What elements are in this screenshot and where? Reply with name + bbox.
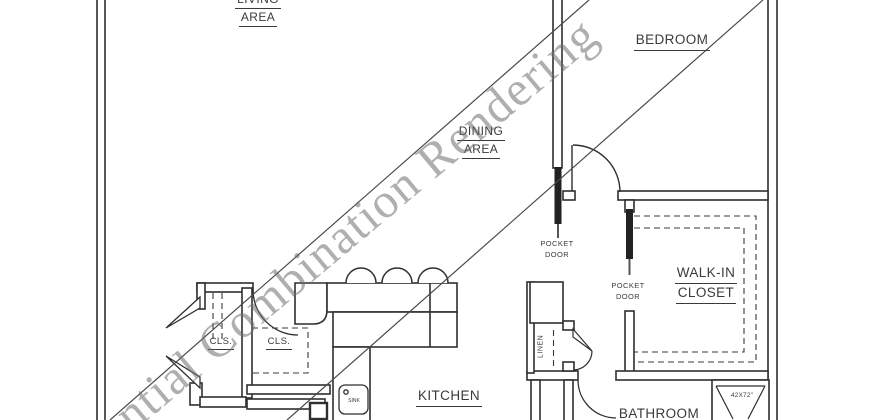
linen-label: LINEN (538, 331, 547, 361)
linen-door (573, 329, 592, 370)
dining-area-label: DINING AREA (453, 124, 509, 160)
pocket-door-1-panel (555, 167, 562, 238)
pocket-door-1-label: POCKET DOOR (536, 239, 578, 261)
walk-in-closet-label: WALK-IN CLOSET (667, 265, 745, 305)
combination-lines (110, 0, 763, 420)
tub-size-label: 42X72" (723, 392, 761, 400)
pocket-door-2-label: POCKET DOOR (607, 281, 649, 303)
pocket-door-2-panel (626, 209, 633, 275)
floor-plan: LIVING AREA DINING AREA BEDROOM WALK-IN … (0, 0, 870, 420)
closet-1-label: CLS. (204, 336, 238, 351)
closet-2-label: CLS. (262, 336, 296, 351)
living-area-label: LIVING AREA (230, 0, 286, 28)
bedroom-door (572, 145, 620, 192)
kitchen-label: KITCHEN (413, 388, 485, 408)
sink-label: SINK (342, 398, 366, 404)
bar-stools (346, 268, 448, 283)
walls (97, 0, 777, 420)
bedroom-label: BEDROOM (628, 32, 716, 52)
bifold-doors (166, 297, 200, 388)
bathroom-door-arc (578, 380, 616, 418)
bathroom-label: BATHROOM (613, 406, 705, 420)
floor-plan-drawing (0, 0, 870, 420)
